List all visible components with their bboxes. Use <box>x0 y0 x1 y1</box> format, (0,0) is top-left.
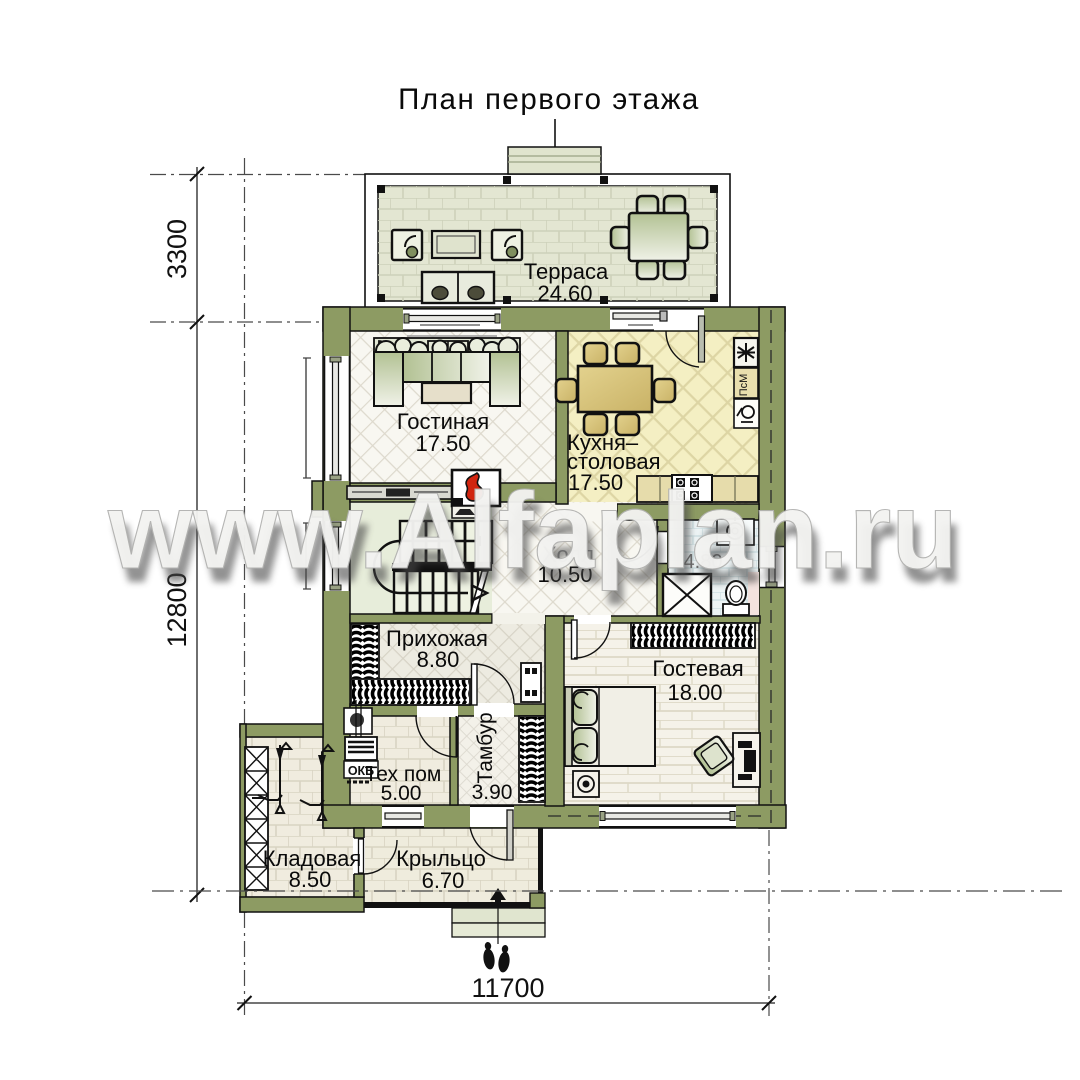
svg-text:11700: 11700 <box>471 973 544 1003</box>
svg-text:6.70: 6.70 <box>422 868 465 893</box>
svg-text:План первого этажа: План первого этажа <box>398 83 700 116</box>
svg-text:17.50: 17.50 <box>415 431 470 456</box>
svg-text:3300: 3300 <box>162 219 192 279</box>
svg-text:5.00: 5.00 <box>381 782 422 805</box>
svg-text:Тамбур: Тамбур <box>474 712 497 783</box>
svg-text:24.60: 24.60 <box>537 281 592 306</box>
svg-text:8.50: 8.50 <box>289 867 332 892</box>
svg-text:www.Alfaplan.ru: www.Alfaplan.ru <box>107 470 958 592</box>
svg-text:8.80: 8.80 <box>417 647 460 672</box>
svg-text:Гостевая: Гостевая <box>652 656 743 681</box>
svg-text:3.90: 3.90 <box>472 781 513 804</box>
svg-text:18.00: 18.00 <box>667 680 722 705</box>
svg-text:ПсМ: ПсМ <box>738 374 750 397</box>
